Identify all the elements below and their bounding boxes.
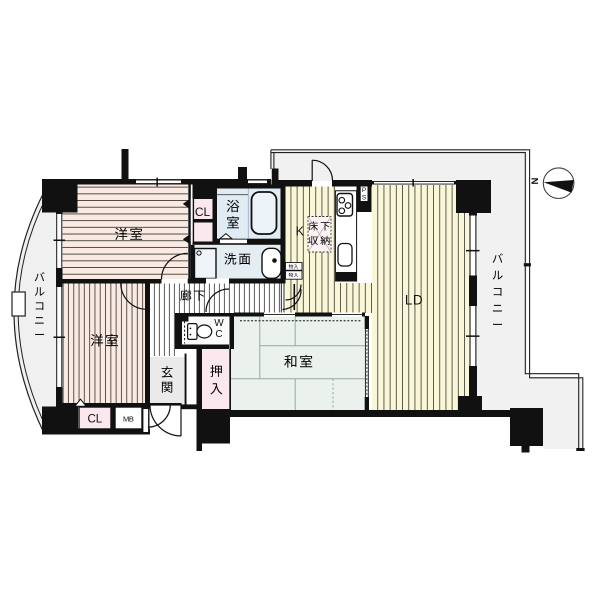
svg-text:W: W [214, 318, 224, 329]
svg-text:P: P [362, 187, 366, 194]
svg-text:N: N [530, 177, 541, 184]
svg-text:S: S [362, 195, 367, 202]
svg-text:K: K [296, 225, 305, 239]
svg-text:C: C [215, 329, 222, 340]
svg-text:LD: LD [405, 292, 423, 307]
svg-text:MB: MB [123, 415, 134, 424]
svg-text:CL: CL [195, 205, 211, 219]
svg-text:CL: CL [87, 414, 102, 426]
